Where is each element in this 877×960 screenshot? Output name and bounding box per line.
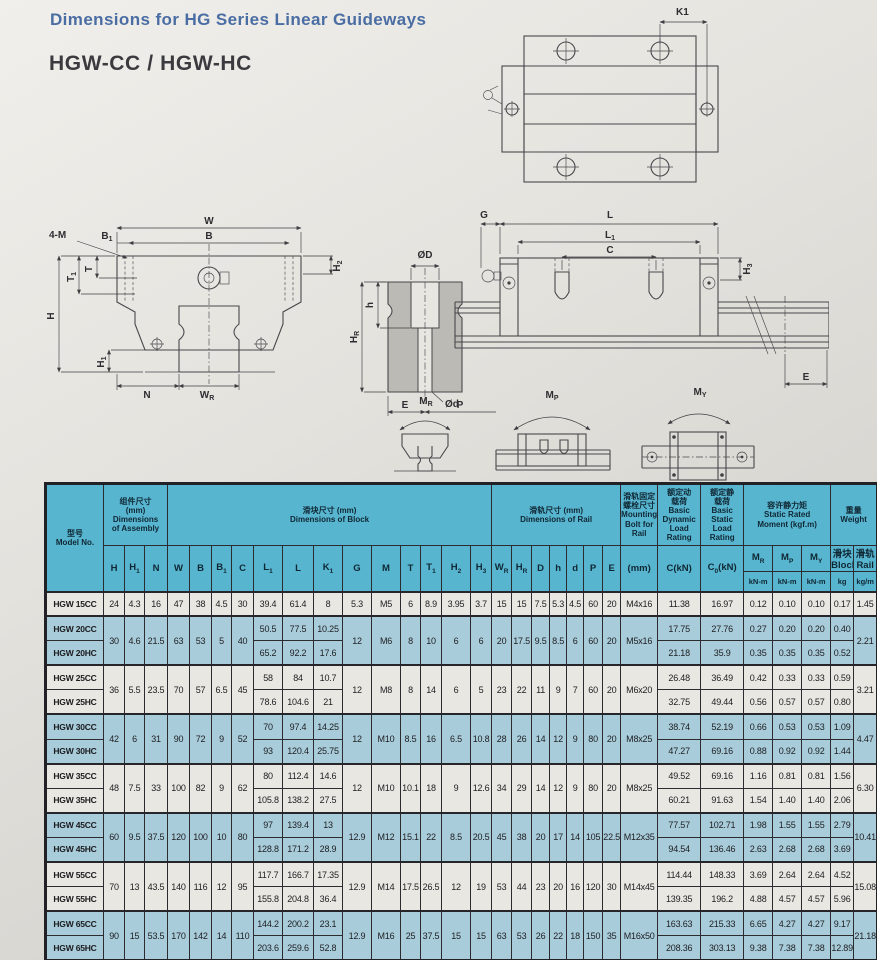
value-cell: 38.74 [658, 714, 701, 739]
side-view-drawing [455, 258, 829, 354]
value-cell: 52.19 [701, 714, 744, 739]
value-cell: 1.09 [831, 714, 854, 739]
value-cell: 12 [343, 665, 372, 714]
value-cell: M6 [372, 616, 401, 665]
value-cell: 8.5 [401, 714, 421, 763]
value-cell: 5.96 [831, 887, 854, 912]
page-title: Dimensions for HG Series Linear Guideway… [50, 10, 426, 30]
value-cell: 21 [314, 690, 343, 715]
value-cell: 171.2 [283, 837, 314, 862]
value-cell: 128.8 [254, 837, 283, 862]
value-cell: 95 [232, 862, 254, 911]
value-cell: 2.64 [802, 862, 831, 887]
value-cell: 39.4 [254, 592, 283, 617]
value-cell: M10 [372, 764, 401, 813]
value-cell: 63 [168, 616, 190, 665]
value-cell: 30 [232, 592, 254, 617]
value-cell: 166.7 [283, 862, 314, 887]
col-bolt: (mm) [621, 546, 658, 592]
value-cell: 93 [254, 739, 283, 764]
value-cell: 4.6 [125, 616, 145, 665]
value-cell: 11 [532, 665, 550, 714]
unit-my: kN-m [802, 572, 831, 592]
dim-label-h2: H2 [332, 260, 344, 271]
value-cell: 102.71 [701, 813, 744, 838]
value-cell: 1.40 [802, 788, 831, 813]
value-cell: 49.44 [701, 690, 744, 715]
dim-label-n: N [143, 390, 150, 400]
mr-label: MR [419, 396, 432, 408]
value-cell: 15 [512, 592, 532, 617]
col-g: G [343, 546, 372, 592]
group-weight: 重量Weight [831, 484, 877, 546]
value-cell: 139.35 [658, 887, 701, 912]
value-cell: 10 [421, 616, 442, 665]
value-cell: 63 [492, 911, 512, 960]
value-cell: 22.5 [603, 813, 621, 862]
col-n: N [145, 546, 168, 592]
value-cell: 35.9 [701, 641, 744, 666]
group-bolt: 滑轨固定螺栓尺寸MountingBolt forRail [621, 484, 658, 546]
value-cell: 48 [104, 764, 125, 813]
value-cell: M5x16 [621, 616, 658, 665]
value-cell: M6x20 [621, 665, 658, 714]
value-cell: 150 [584, 911, 603, 960]
value-cell: 22 [550, 911, 567, 960]
value-cell: 215.33 [701, 911, 744, 936]
dim-label-hole-h: h [365, 302, 376, 308]
col-k1: K1 [314, 546, 343, 592]
value-cell: 8.9 [421, 592, 442, 617]
value-cell: M8x25 [621, 764, 658, 813]
value-cell: 40 [232, 616, 254, 665]
value-cell: 4.5 [567, 592, 584, 617]
col-t1: T1 [421, 546, 442, 592]
value-cell: 82 [190, 764, 212, 813]
value-cell: 25 [401, 911, 421, 960]
value-cell: 7.38 [802, 936, 831, 960]
value-cell: 80 [254, 764, 283, 789]
group-assembly: 组件尺寸(mm)Dimensionsof Assembly [104, 484, 168, 546]
value-cell: 1.98 [744, 813, 773, 838]
value-cell: 45 [492, 813, 512, 862]
model-cell: HGW 45HC [46, 837, 104, 862]
value-cell: 6 [567, 616, 584, 665]
value-cell: 80 [584, 764, 603, 813]
value-cell: 90 [104, 911, 125, 960]
value-cell: 14 [567, 813, 584, 862]
value-cell: 2.68 [773, 837, 802, 862]
value-cell: 0.80 [831, 690, 854, 715]
value-cell: 14 [212, 911, 232, 960]
value-cell: 6 [442, 665, 471, 714]
value-cell: 69.16 [701, 739, 744, 764]
col-my: MY [802, 546, 831, 572]
value-cell: 52.8 [314, 936, 343, 960]
moment-mr: MR [394, 396, 456, 471]
value-cell: 0.52 [831, 641, 854, 666]
dim-label-w: W [204, 216, 214, 227]
value-cell: 6 [442, 616, 471, 665]
value-cell: 0.53 [773, 714, 802, 739]
value-cell: 0.53 [802, 714, 831, 739]
value-cell: 9 [567, 714, 584, 763]
value-cell: 6 [471, 616, 492, 665]
value-cell: 0.20 [773, 616, 802, 641]
model-series-heading: HGW-CC / HGW-HC [49, 52, 252, 76]
value-cell: 2.64 [773, 862, 802, 887]
value-cell: 0.81 [773, 764, 802, 789]
value-cell: 4.27 [802, 911, 831, 936]
value-cell: M12 [372, 813, 401, 862]
value-cell: 36 [104, 665, 125, 714]
dim-label-l1: L1 [605, 230, 615, 242]
col-p: P [584, 546, 603, 592]
model-cell: HGW 35HC [46, 788, 104, 813]
value-cell: 0.35 [802, 641, 831, 666]
col-e: E [603, 546, 621, 592]
col-wr: WR [492, 546, 512, 592]
value-cell: 78.6 [254, 690, 283, 715]
value-cell: 10.8 [471, 714, 492, 763]
col-c: C [232, 546, 254, 592]
value-cell: 120.4 [283, 739, 314, 764]
value-cell: 20 [603, 764, 621, 813]
value-cell: 23.5 [145, 665, 168, 714]
value-cell: 8.5 [550, 616, 567, 665]
value-cell: 104.6 [283, 690, 314, 715]
value-cell: 0.56 [744, 690, 773, 715]
value-cell: M14x45 [621, 862, 658, 911]
value-cell: 26 [512, 714, 532, 763]
value-cell: 0.33 [773, 665, 802, 690]
value-cell: 17 [550, 813, 567, 862]
value-cell: 12 [550, 714, 567, 763]
col-h: H [104, 546, 125, 592]
dim-label-t1: T1 [66, 272, 78, 282]
front-section-diagram: W B B1 4-M T T1 H H2 H1 N [45, 198, 345, 400]
value-cell: M4x16 [621, 592, 658, 617]
unit-block-kg: kg [831, 572, 854, 592]
value-cell: 84 [283, 665, 314, 690]
value-cell: 0.92 [802, 739, 831, 764]
value-cell: 105 [584, 813, 603, 862]
value-cell: 3.69 [744, 862, 773, 887]
value-cell: 12 [343, 764, 372, 813]
value-cell: 5.3 [343, 592, 372, 617]
value-cell: 15.1 [401, 813, 421, 862]
value-cell: 6 [125, 714, 145, 763]
value-cell: 45 [232, 665, 254, 714]
dim-label-h1: H1 [96, 356, 108, 367]
value-cell: 92.2 [283, 641, 314, 666]
value-cell: M5 [372, 592, 401, 617]
col-wrail: 滑轨Rail [854, 546, 877, 572]
value-cell: 35 [603, 911, 621, 960]
value-cell: 117.7 [254, 862, 283, 887]
value-cell: 8 [401, 616, 421, 665]
model-cell: HGW 20CC [46, 616, 104, 641]
value-cell: 0.42 [744, 665, 773, 690]
value-cell: 80 [584, 714, 603, 763]
value-cell: 204.8 [283, 887, 314, 912]
value-cell: 60 [584, 665, 603, 714]
value-cell: 14.6 [314, 764, 343, 789]
value-cell: 12 [343, 616, 372, 665]
col-l1: L1 [254, 546, 283, 592]
value-cell: 29 [512, 764, 532, 813]
value-cell: 52 [232, 714, 254, 763]
block-top-drawing [484, 36, 719, 182]
value-cell: M8 [372, 665, 401, 714]
model-cell: HGW 20HC [46, 641, 104, 666]
value-cell: 22 [512, 665, 532, 714]
value-cell: 20 [603, 665, 621, 714]
value-cell: 10.25 [314, 616, 343, 641]
col-m: M [372, 546, 401, 592]
value-cell: 21.18 [658, 641, 701, 666]
group-static-moment: 容许静力矩Static RatedMoment (kgf.m) [744, 484, 831, 546]
value-cell: 15 [492, 592, 512, 617]
side-view-diagram: G L L1 C H3 E [400, 196, 829, 400]
value-cell: 17.75 [658, 616, 701, 641]
dim-label-b: B [205, 231, 212, 242]
group-static-load: 额定静载荷BasicStaticLoadRating [701, 484, 744, 546]
grease-nipple-icon [484, 86, 503, 114]
mp-label: MP [545, 390, 558, 402]
rail-weight-cell: 6.30 [854, 764, 877, 813]
value-cell: 3.95 [442, 592, 471, 617]
value-cell: 61.4 [283, 592, 314, 617]
value-cell: 4.57 [802, 887, 831, 912]
value-cell: 0.92 [773, 739, 802, 764]
col-w: W [168, 546, 190, 592]
value-cell: 7 [567, 665, 584, 714]
rail-weight-cell: 15.08 [854, 862, 877, 911]
value-cell: 3.7 [471, 592, 492, 617]
value-cell: 23 [492, 665, 512, 714]
value-cell: 58 [254, 665, 283, 690]
value-cell: 18 [421, 764, 442, 813]
value-cell: 4.57 [773, 887, 802, 912]
value-cell: 0.20 [802, 616, 831, 641]
col-l: L [283, 546, 314, 592]
model-cell: HGW 65HC [46, 936, 104, 960]
col-b1: B1 [212, 546, 232, 592]
value-cell: 8.5 [442, 813, 471, 862]
value-cell: 105.8 [254, 788, 283, 813]
value-cell: 114.44 [658, 862, 701, 887]
value-cell: 5.3 [550, 592, 567, 617]
value-cell: 6.65 [744, 911, 773, 936]
value-cell: 17.6 [314, 641, 343, 666]
value-cell: 1.44 [831, 739, 854, 764]
value-cell: 20 [492, 616, 512, 665]
value-cell: 24 [104, 592, 125, 617]
value-cell: 6.5 [212, 665, 232, 714]
value-cell: 53.5 [145, 911, 168, 960]
value-cell: 94.54 [658, 837, 701, 862]
dim-label-wr: WR [200, 390, 215, 400]
value-cell: 44 [512, 862, 532, 911]
value-cell: 0.40 [831, 616, 854, 641]
dim-label-t: T [84, 266, 95, 272]
value-cell: 62 [232, 764, 254, 813]
value-cell: 200.2 [283, 911, 314, 936]
value-cell: 36.4 [314, 887, 343, 912]
value-cell: 259.6 [283, 936, 314, 960]
value-cell: 37.5 [421, 911, 442, 960]
value-cell: 18 [567, 911, 584, 960]
side-view-dimensions: G L L1 C H3 E [480, 210, 827, 388]
col-hr: HR [512, 546, 532, 592]
col-dd: d [567, 546, 584, 592]
value-cell: 1.56 [831, 764, 854, 789]
value-cell: 5 [471, 665, 492, 714]
value-cell: 14 [532, 764, 550, 813]
col-t: T [401, 546, 421, 592]
value-cell: 32.75 [658, 690, 701, 715]
value-cell: 112.4 [283, 764, 314, 789]
value-cell: 17.5 [512, 616, 532, 665]
mounting-holes [504, 38, 715, 180]
value-cell: 9 [567, 764, 584, 813]
value-cell: M10 [372, 714, 401, 763]
value-cell: 15 [125, 911, 145, 960]
group-dynamic-load: 额定动载荷BasicDynamicLoadRating [658, 484, 701, 546]
value-cell: 28 [492, 714, 512, 763]
value-cell: 77.57 [658, 813, 701, 838]
value-cell: 37.5 [145, 813, 168, 862]
value-cell: 12.9 [343, 911, 372, 960]
value-cell: 196.2 [701, 887, 744, 912]
value-cell: 163.63 [658, 911, 701, 936]
value-cell: 60 [104, 813, 125, 862]
value-cell: 1.16 [744, 764, 773, 789]
value-cell: 303.13 [701, 936, 744, 960]
value-cell: 120 [584, 862, 603, 911]
moment-diagrams: MR MP MY [338, 384, 877, 482]
value-cell: M16x50 [621, 911, 658, 960]
value-cell: 0.17 [831, 592, 854, 617]
value-cell: 5 [212, 616, 232, 665]
model-cell: HGW 35CC [46, 764, 104, 789]
value-cell: 28.9 [314, 837, 343, 862]
value-cell: 100 [190, 813, 212, 862]
value-cell: 12.9 [343, 813, 372, 862]
grease-nipple-icon [482, 270, 494, 282]
value-cell: 14 [421, 665, 442, 714]
catalog-page: Dimensions for HG Series Linear Guideway… [0, 0, 877, 960]
value-cell: 0.59 [831, 665, 854, 690]
value-cell: 0.35 [773, 641, 802, 666]
value-cell: M14 [372, 862, 401, 911]
dim-label-l: L [607, 210, 613, 221]
value-cell: 4.88 [744, 887, 773, 912]
value-cell: 1.55 [773, 813, 802, 838]
front-section-drawing [117, 244, 301, 384]
value-cell: 100 [168, 764, 190, 813]
value-cell: 140 [168, 862, 190, 911]
block-top-view-diagram: K1 [478, 2, 730, 188]
value-cell: 49.52 [658, 764, 701, 789]
value-cell: 116 [190, 862, 212, 911]
col-h1: H1 [125, 546, 145, 592]
col-d: D [532, 546, 550, 592]
value-cell: 53 [492, 862, 512, 911]
value-cell: 6 [401, 592, 421, 617]
value-cell: 11.38 [658, 592, 701, 617]
group-block: 滑块尺寸 (mm)Dimensions of Block [168, 484, 492, 546]
value-cell: 0.57 [802, 690, 831, 715]
value-cell: 20.5 [471, 813, 492, 862]
dim-label-k1: K1 [676, 7, 689, 18]
unit-mp: kN-m [773, 572, 802, 592]
value-cell: 60.21 [658, 788, 701, 813]
value-cell: 9 [212, 764, 232, 813]
col-hh: h [550, 546, 567, 592]
value-cell: 6.5 [442, 714, 471, 763]
value-cell: 120 [168, 813, 190, 862]
model-cell: HGW 30CC [46, 714, 104, 739]
value-cell: 110 [232, 911, 254, 960]
value-cell: 27.5 [314, 788, 343, 813]
dim-label-h3: H3 [742, 263, 754, 274]
value-cell: 30 [603, 862, 621, 911]
dim-label-g: G [480, 210, 488, 221]
col-h2: H2 [442, 546, 471, 592]
value-cell: 0.12 [744, 592, 773, 617]
value-cell: 12 [550, 764, 567, 813]
value-cell: 27.76 [701, 616, 744, 641]
value-cell: 3.69 [831, 837, 854, 862]
value-cell: 9.5 [532, 616, 550, 665]
dim-k1: K1 [660, 7, 707, 104]
col-h3: H3 [471, 546, 492, 592]
model-cell: HGW 45CC [46, 813, 104, 838]
moment-my: MY [642, 387, 754, 480]
value-cell: 170 [168, 911, 190, 960]
value-cell: 9.17 [831, 911, 854, 936]
value-cell: 53 [512, 911, 532, 960]
value-cell: 91.63 [701, 788, 744, 813]
value-cell: 23.1 [314, 911, 343, 936]
value-cell: 203.6 [254, 936, 283, 960]
value-cell: 8 [314, 592, 343, 617]
value-cell: 2.63 [744, 837, 773, 862]
value-cell: 5.5 [125, 665, 145, 714]
value-cell: 9 [550, 665, 567, 714]
value-cell: 155.8 [254, 887, 283, 912]
value-cell: 9 [442, 764, 471, 813]
value-cell: 26.5 [421, 862, 442, 911]
value-cell: 16 [421, 714, 442, 763]
value-cell: 20 [532, 813, 550, 862]
model-cell: HGW 30HC [46, 739, 104, 764]
value-cell: 14 [532, 714, 550, 763]
rail-weight-cell: 10.41 [854, 813, 877, 862]
rail-weight-cell: 4.47 [854, 714, 877, 763]
value-cell: 17.35 [314, 862, 343, 887]
value-cell: 23 [532, 862, 550, 911]
col-mp: MP [773, 546, 802, 572]
value-cell: 9.38 [744, 936, 773, 960]
value-cell: 12 [343, 714, 372, 763]
value-cell: 10.7 [314, 665, 343, 690]
value-cell: 70 [168, 665, 190, 714]
value-cell: 72 [190, 714, 212, 763]
value-cell: 12 [212, 862, 232, 911]
